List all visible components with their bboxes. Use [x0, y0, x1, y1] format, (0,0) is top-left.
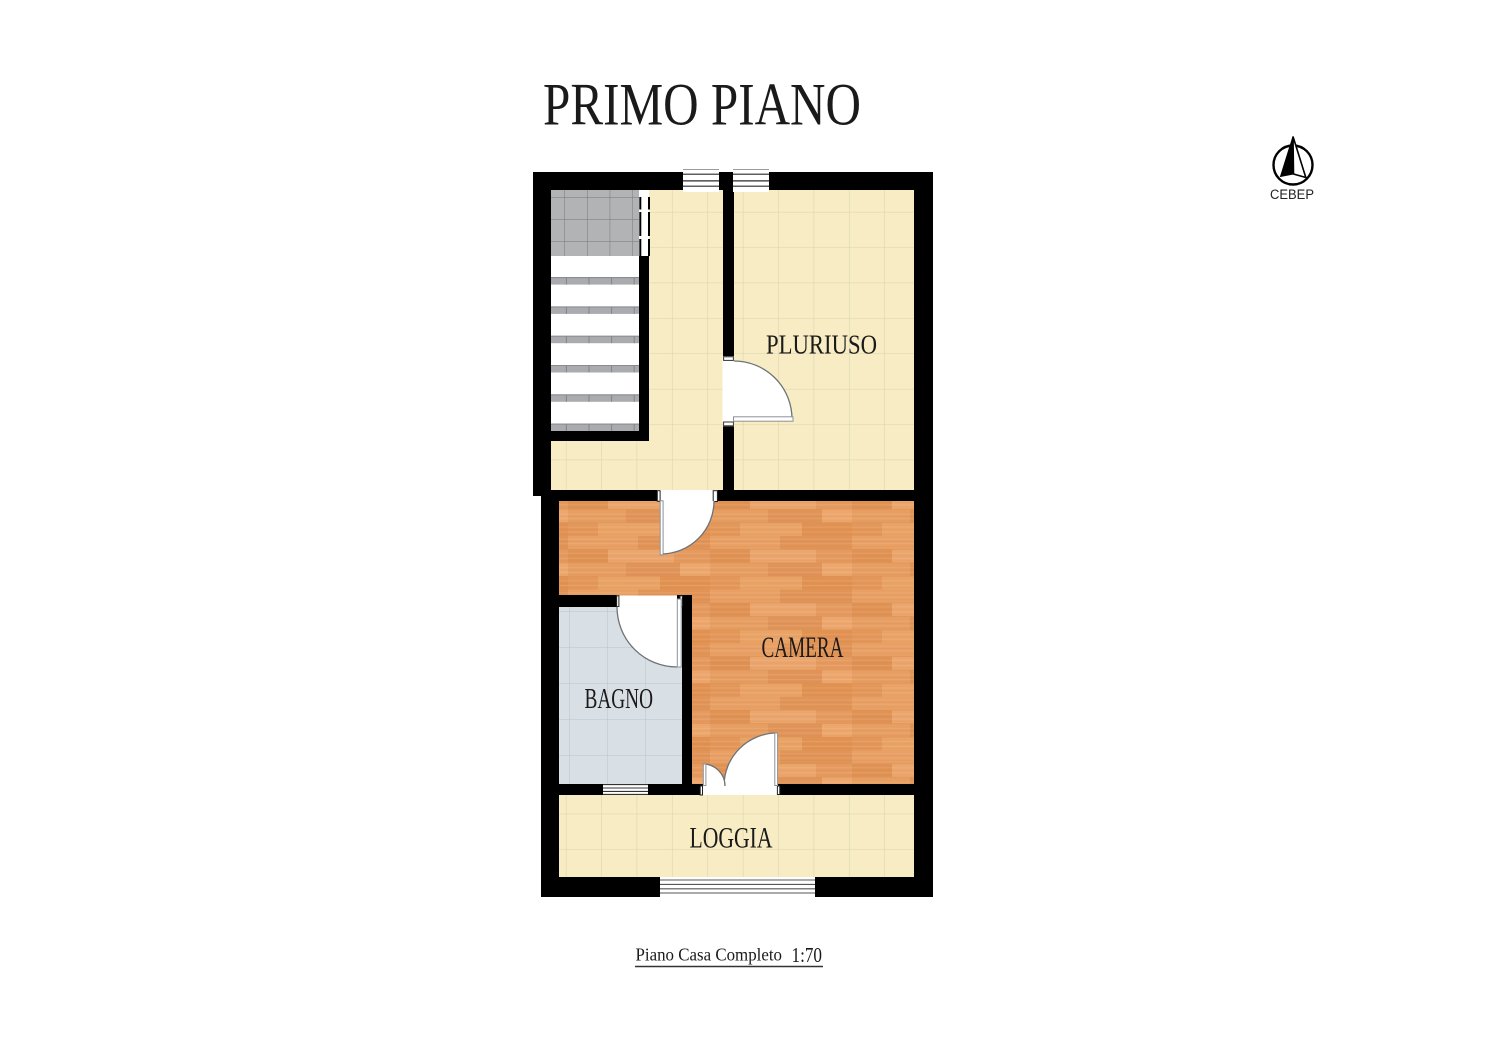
svg-text:Piano Casa Completo: Piano Casa Completo	[636, 945, 783, 965]
svg-text:CAMERA: CAMERA	[762, 631, 844, 664]
svg-text:BAGNO: BAGNO	[585, 684, 654, 715]
svg-text:PLURIUSO: PLURIUSO	[766, 330, 877, 360]
svg-text:СЕВЕР: СЕВЕР	[1270, 187, 1314, 202]
svg-text:PRIMO PIANO: PRIMO PIANO	[543, 72, 861, 138]
svg-text:LOGGIA: LOGGIA	[690, 822, 773, 855]
svg-text:1:70: 1:70	[792, 943, 823, 967]
